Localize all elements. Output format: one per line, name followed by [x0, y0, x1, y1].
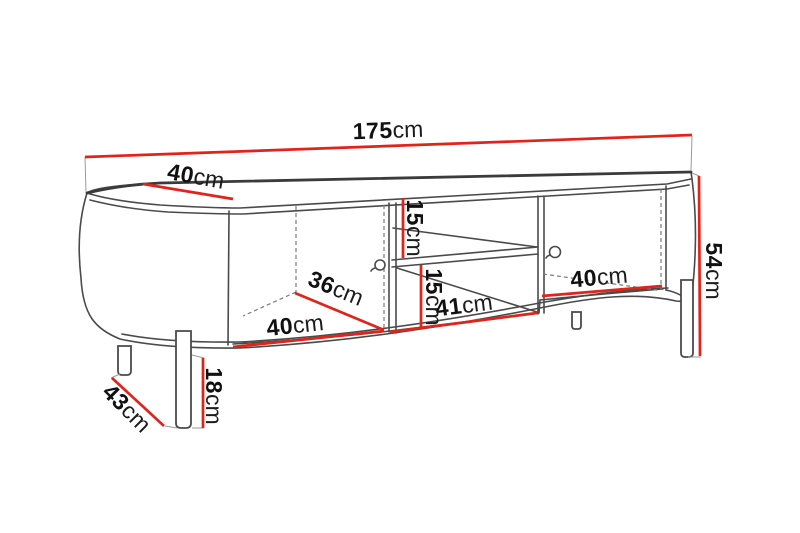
- label-total-height: 54cm: [701, 242, 727, 299]
- height-ext-top: [692, 173, 699, 176]
- width-ext-right: [691, 136, 692, 171]
- furniture-dimension-diagram: 175cm 40cm 15cm 15cm 41cm 40cm 54cm 36cm…: [0, 0, 800, 533]
- front-right-leg: [681, 280, 693, 357]
- rear-right-leg: [572, 312, 581, 329]
- front-left-leg: [176, 331, 191, 428]
- label-total-width-value: 175: [352, 117, 393, 144]
- bottom-step-at-divider: [539, 300, 540, 313]
- rear-left-leg: [118, 346, 131, 375]
- label-right-door-width-value: 40: [569, 264, 598, 292]
- label-right-door-width-unit: cm: [596, 262, 629, 291]
- label-leg-height-value: 18: [201, 367, 227, 394]
- cabinet-body: [79, 172, 695, 348]
- label-base-depth: 43cm: [98, 379, 157, 438]
- label-right-door-width: 40cm: [569, 262, 628, 293]
- label-left-door-width-value: 40: [265, 312, 294, 341]
- dim-line-total-height: [699, 176, 700, 356]
- label-upper-shelf-height-unit: cm: [402, 226, 428, 257]
- label-top-depth-unit: cm: [192, 163, 227, 194]
- label-middle-shelf-width-unit: cm: [460, 289, 494, 319]
- label-lower-shelf-height-value: 15: [421, 268, 447, 295]
- label-middle-shelf-width-value: 41: [434, 292, 464, 321]
- width-ext-left: [85, 157, 86, 192]
- label-leg-height-unit: cm: [201, 394, 227, 425]
- cabinet-silhouette: [79, 172, 695, 348]
- depth-ext-top: [111, 374, 120, 378]
- label-leg-height: 18cm: [201, 367, 227, 424]
- leg-ext-top: [192, 355, 204, 358]
- left-door-left-edge: [228, 211, 229, 345]
- label-total-width: 175cm: [352, 116, 423, 144]
- label-total-height-unit: cm: [701, 269, 727, 300]
- label-upper-shelf-height-value: 15: [402, 199, 428, 226]
- right-door-knob: [550, 247, 561, 258]
- depth-ext-bottom: [165, 426, 177, 428]
- diagram-canvas: 175cm 40cm 15cm 15cm 41cm 40cm 54cm 36cm…: [0, 0, 800, 533]
- left-door-knob: [375, 260, 385, 270]
- label-upper-shelf-height: 15cm: [402, 199, 428, 256]
- label-total-width-unit: cm: [392, 116, 424, 143]
- label-total-height-value: 54: [701, 242, 727, 269]
- label-left-door-width-unit: cm: [292, 309, 325, 338]
